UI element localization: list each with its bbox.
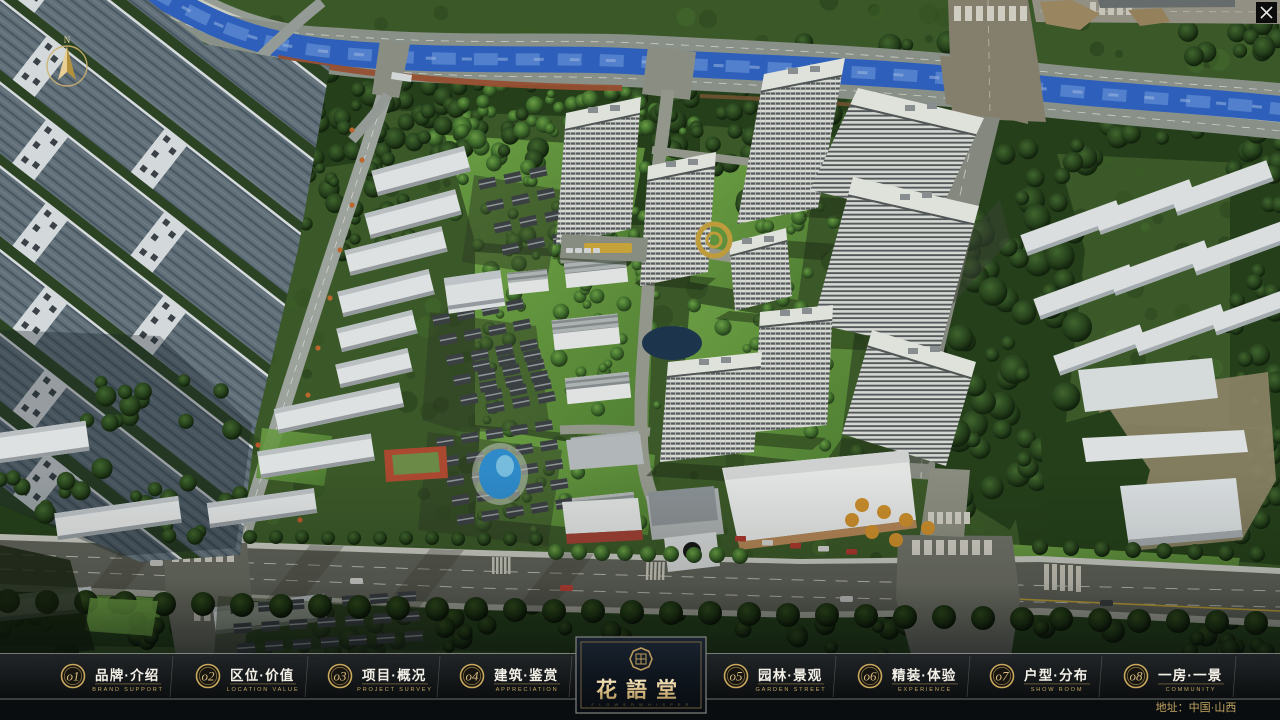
svg-text:o5: o5 xyxy=(730,669,744,684)
svg-text:COMMUNITY: COMMUNITY xyxy=(1166,687,1217,693)
svg-text:项目·概况: 项目·概况 xyxy=(362,667,427,683)
svg-text:N: N xyxy=(64,35,71,45)
svg-text:地址：中国·山西: 地址：中国·山西 xyxy=(1156,700,1237,714)
svg-text:BRAND SUPPORT: BRAND SUPPORT xyxy=(92,687,163,693)
svg-text:o7: o7 xyxy=(996,669,1010,684)
svg-text:o4: o4 xyxy=(466,669,480,684)
svg-text:F L O W E R W H I S P E R: F L O W E R W H I S P E R xyxy=(592,702,691,707)
svg-text:一房·一景: 一房·一景 xyxy=(1158,667,1223,683)
svg-text:园林·景观: 园林·景观 xyxy=(758,667,823,683)
svg-text:EXPERIENCE: EXPERIENCE xyxy=(898,687,952,693)
svg-text:o2: o2 xyxy=(202,669,216,684)
svg-text:品牌·介绍: 品牌·介绍 xyxy=(95,667,160,683)
svg-text:精装·体验: 精装·体验 xyxy=(892,667,957,683)
svg-text:建筑·鉴赏: 建筑·鉴赏 xyxy=(493,667,559,683)
svg-text:GARDEN STREET: GARDEN STREET xyxy=(756,687,827,693)
svg-text:区位·价值: 区位·价值 xyxy=(230,667,295,683)
svg-text:o6: o6 xyxy=(864,669,878,684)
svg-text:o1: o1 xyxy=(67,669,80,684)
svg-text:PROJECT SURVEY: PROJECT SURVEY xyxy=(357,687,433,693)
svg-text:o3: o3 xyxy=(334,669,348,684)
svg-text:花語堂: 花語堂 xyxy=(596,678,686,702)
svg-text:SHOW ROOM: SHOW ROOM xyxy=(1031,687,1084,693)
svg-text:LOCATION VALUE: LOCATION VALUE xyxy=(227,687,300,693)
svg-text:户型·分布: 户型·分布 xyxy=(1024,667,1089,683)
svg-text:o8: o8 xyxy=(1130,669,1144,684)
svg-text:APPRECIATION: APPRECIATION xyxy=(496,687,559,693)
